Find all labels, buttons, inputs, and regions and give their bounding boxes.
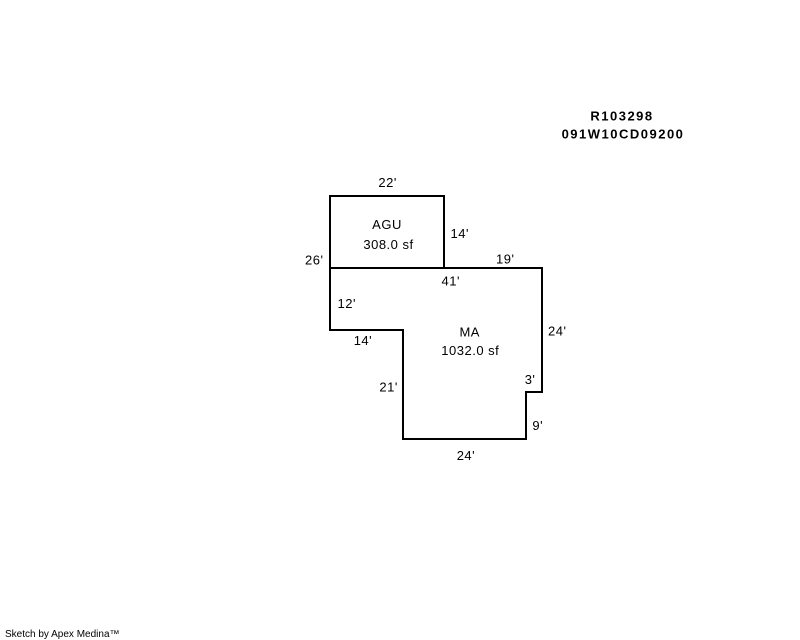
svg-text:24': 24'	[457, 448, 475, 463]
svg-text:26': 26'	[305, 253, 323, 268]
svg-text:1032.0 sf: 1032.0 sf	[441, 343, 499, 358]
svg-text:14': 14'	[451, 226, 469, 241]
svg-text:9': 9'	[532, 418, 543, 433]
svg-text:14': 14'	[354, 333, 372, 348]
svg-text:22': 22'	[378, 175, 396, 190]
svg-text:308.0 sf: 308.0 sf	[363, 237, 413, 252]
svg-text:Sketch by Apex Medina™: Sketch by Apex Medina™	[5, 629, 120, 640]
svg-text:21': 21'	[379, 380, 397, 395]
svg-text:091W10CD09200: 091W10CD09200	[562, 127, 685, 142]
svg-text:AGU: AGU	[372, 217, 402, 232]
svg-text:12': 12'	[338, 296, 356, 311]
svg-text:3': 3'	[525, 372, 536, 387]
svg-text:19': 19'	[496, 252, 514, 267]
svg-text:MA: MA	[459, 325, 480, 340]
svg-text:41': 41'	[442, 274, 460, 289]
svg-text:24': 24'	[548, 324, 566, 339]
svg-text:R103298: R103298	[590, 109, 653, 124]
